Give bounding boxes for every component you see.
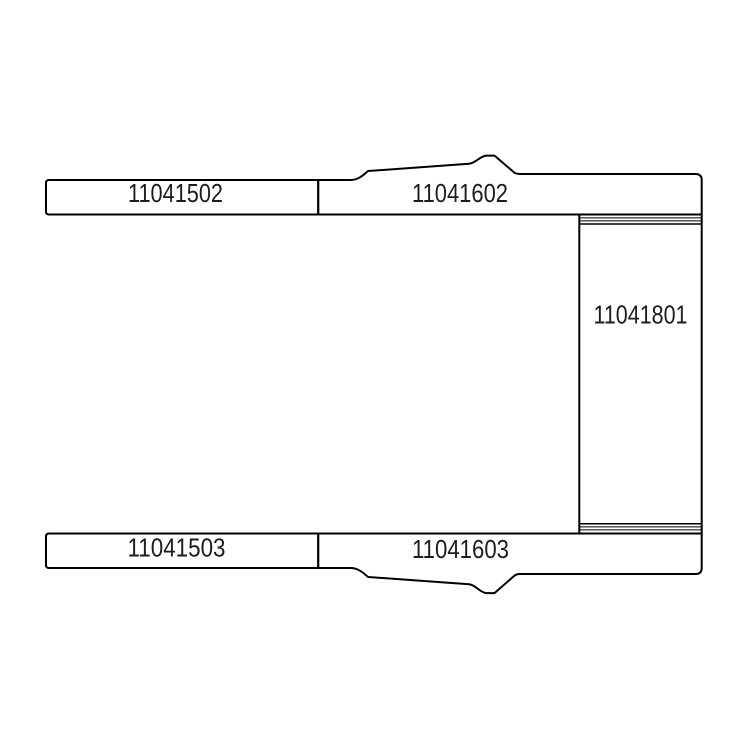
svg-text:11041603: 11041603 <box>412 534 509 564</box>
svg-text:11041503: 11041503 <box>128 533 226 563</box>
svg-text:11041502: 11041502 <box>128 178 223 208</box>
svg-text:11041602: 11041602 <box>412 178 508 208</box>
svg-text:11041801: 11041801 <box>594 300 688 330</box>
